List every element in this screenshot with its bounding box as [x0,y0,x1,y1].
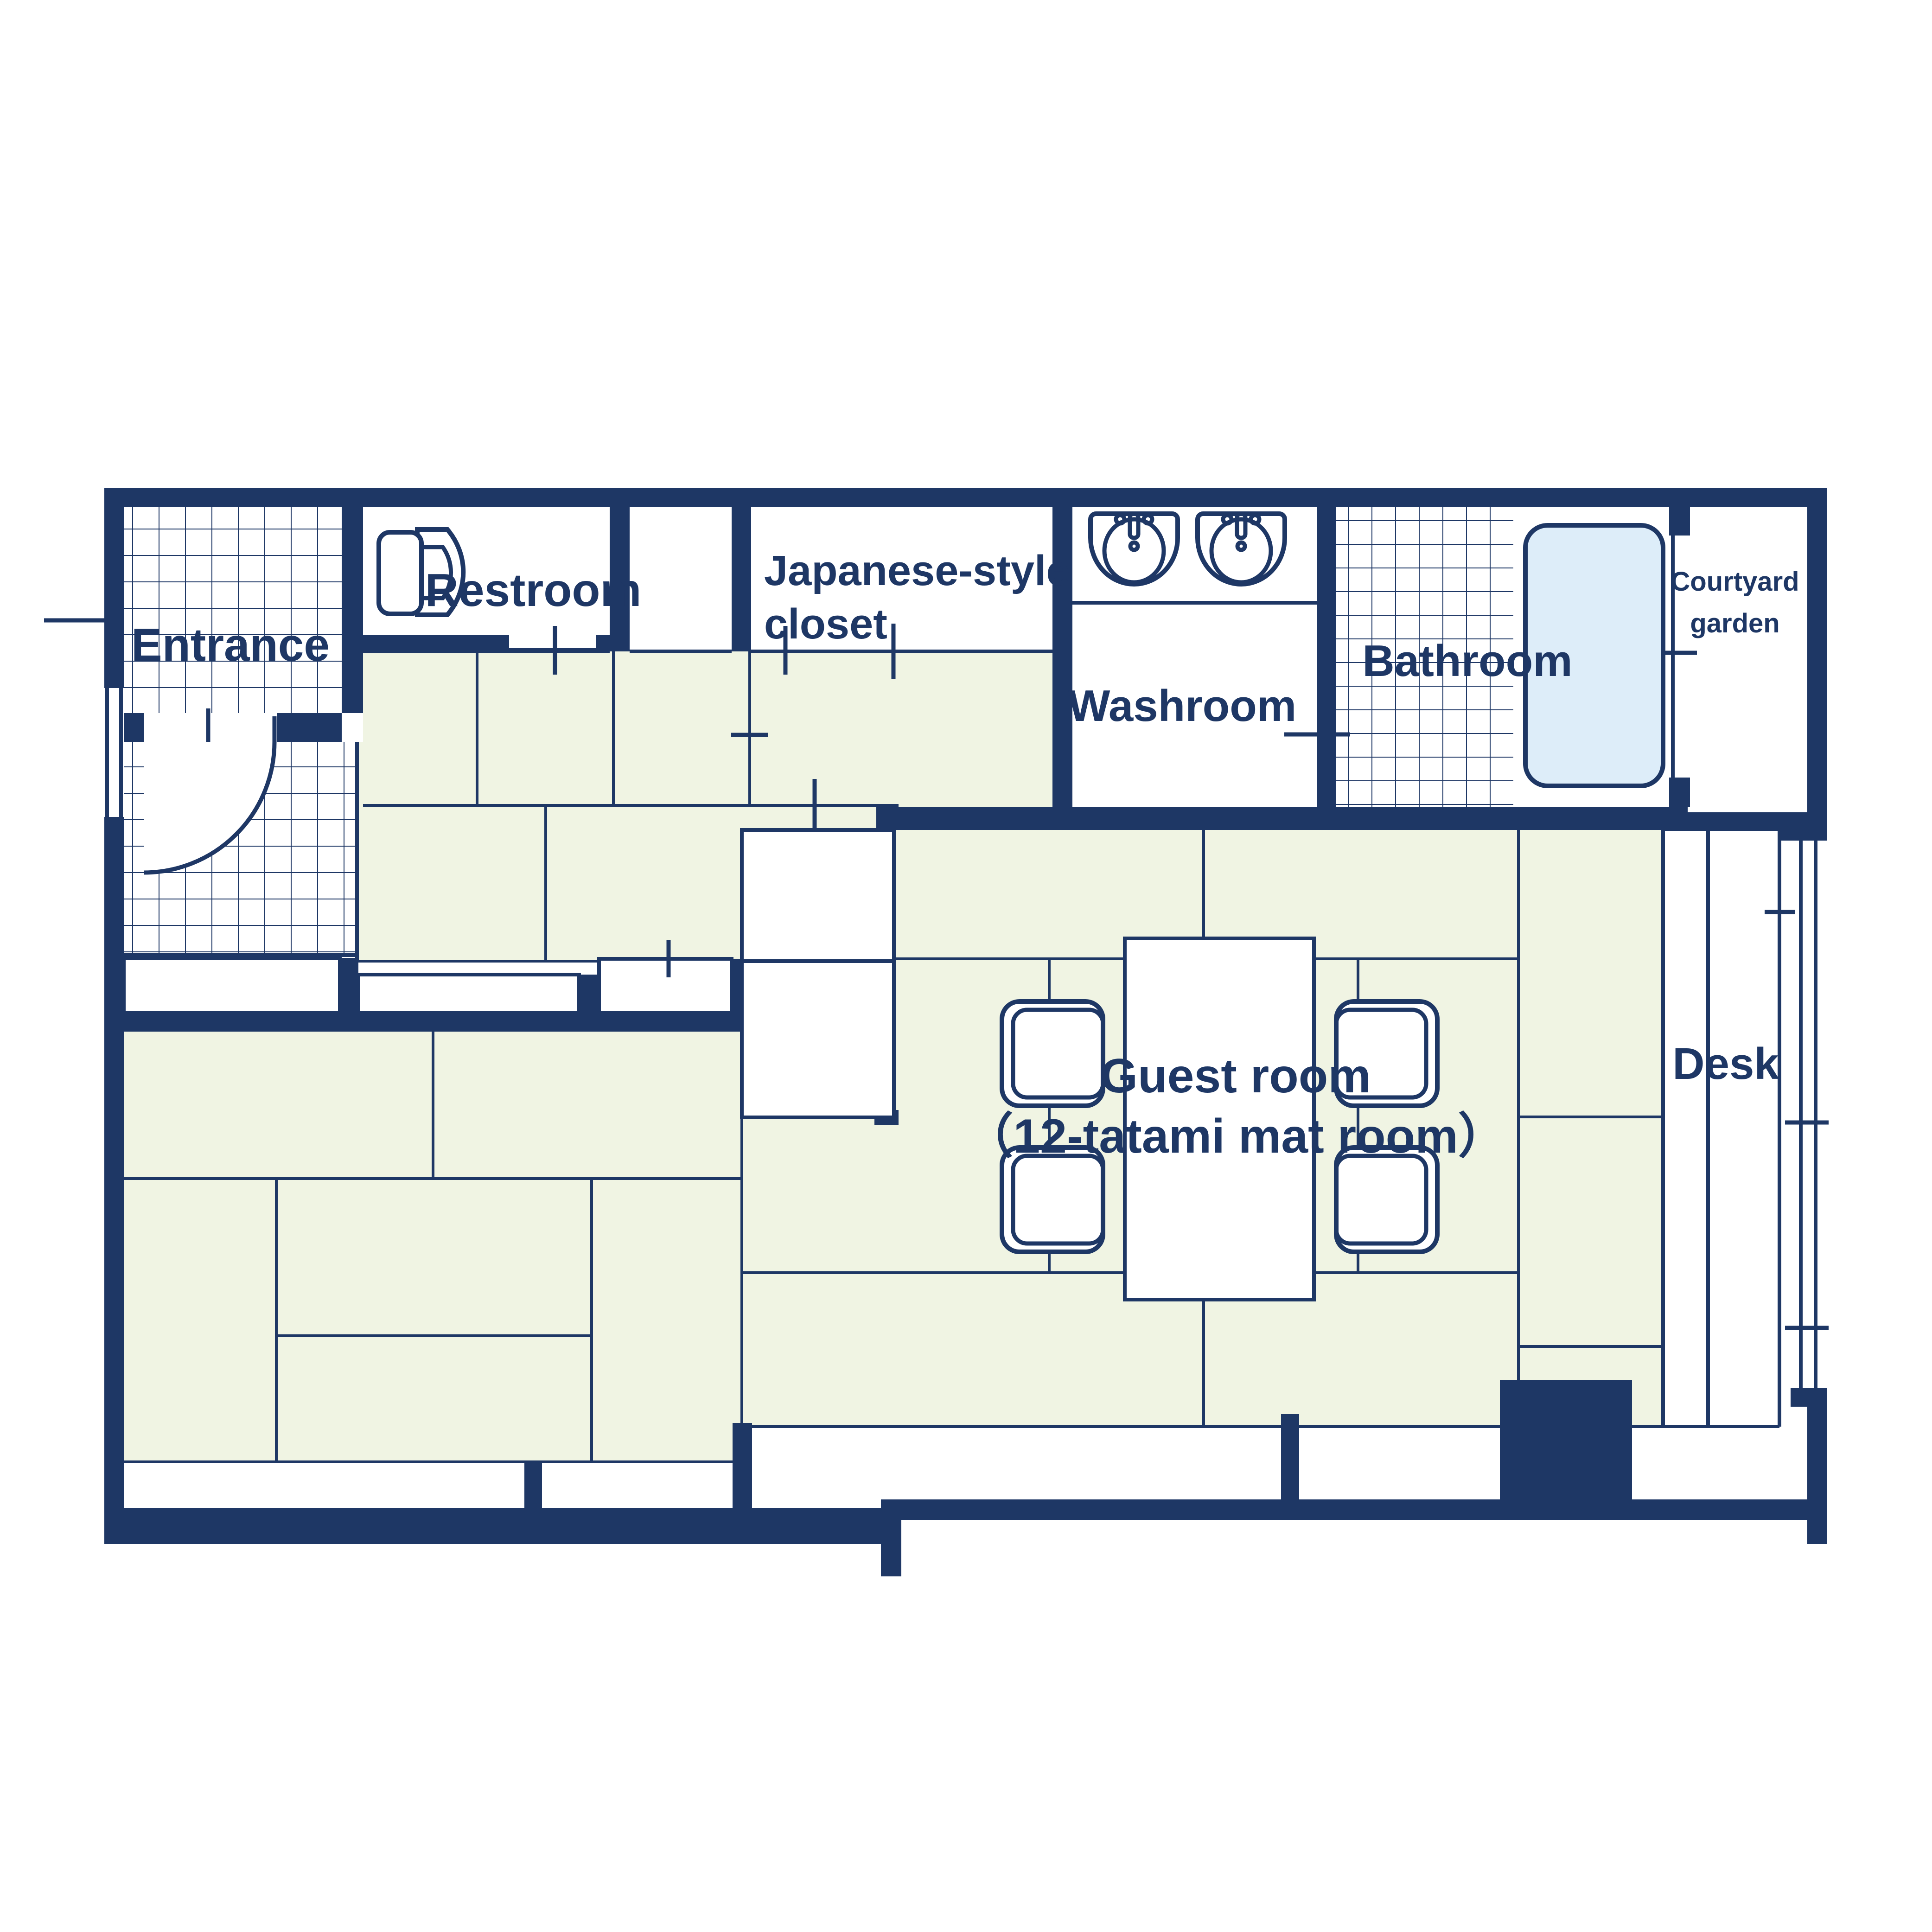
wall-right-cap [1791,1388,1827,1407]
wall-closet-closet [732,506,751,651]
wall-left-lower [104,821,124,1544]
wall-bottom-step [881,1499,901,1576]
japanese-closet-label-line2: closet [764,600,887,648]
small-closet-floor [630,506,732,651]
washroom-label: Washroom [1068,681,1296,731]
japanese-closet-label-line1: Japanese-style [764,547,1070,594]
wall-right-lower [1807,1388,1827,1544]
guestroom-closet-column [742,830,894,1117]
wall-courtyard-stub-top [1669,506,1690,536]
left-wall-window [104,682,124,823]
wall-bottom-right [901,1499,1827,1520]
entry-step-box [124,958,340,1013]
wall-guestroom-left-bottom [733,1423,752,1508]
wall-left-upper [104,488,124,686]
wall-guestroom-top-corner [876,804,899,830]
wall-veranda-stub-left [524,1462,542,1508]
wall-entrance-door-right [277,713,342,742]
wall-veranda-stub-right [1281,1414,1299,1499]
right-engawa-window [1801,841,1816,1388]
courtyard-floor [1690,506,1807,807]
floor-chair [1002,1001,1103,1106]
bathroom-label: Bathroom [1362,636,1572,686]
wall-restroom-bottom-right [596,635,610,651]
sink-icon-left [1090,514,1178,584]
entrance-label: Entrance [131,619,330,671]
wall-guestroom-top [894,807,1688,830]
oshiire-box-right [599,959,732,1013]
floor-plan: Entrance Restroom Japanese-style closet … [0,0,1932,1932]
oshiire-box-left [358,975,579,1013]
wall-entrance-door-left [124,713,144,742]
wall-secondroom-top [124,1013,752,1032]
wall-washroom-bathroom [1317,506,1336,807]
wall-courtyard-stub-bottom [1669,778,1690,807]
wall-entrance-restroom [342,506,363,713]
wall-top [104,488,1827,507]
toilet-tank [379,532,421,614]
desk-label: Desk [1672,1039,1779,1089]
wall-restroom-bottom-left [363,635,509,651]
entrance-tile-grid [124,506,342,713]
wall-courtyard-bottom [1663,812,1807,831]
restroom-label: Restroom [425,564,642,616]
wall-bottom-left [104,1508,901,1544]
sink-icon-right [1198,514,1285,584]
tokonoma-block [1500,1380,1632,1519]
courtyard-label-line1: Courtyard [1671,567,1799,597]
wall-right-upper [1807,488,1827,841]
courtyard-label-line2: garden [1690,608,1779,638]
desk-lines [1663,830,1779,1427]
guest-room-label-line2: （12-tatami mat room） [965,1109,1506,1163]
guest-room-label-line1: Guest room [1100,1049,1371,1103]
